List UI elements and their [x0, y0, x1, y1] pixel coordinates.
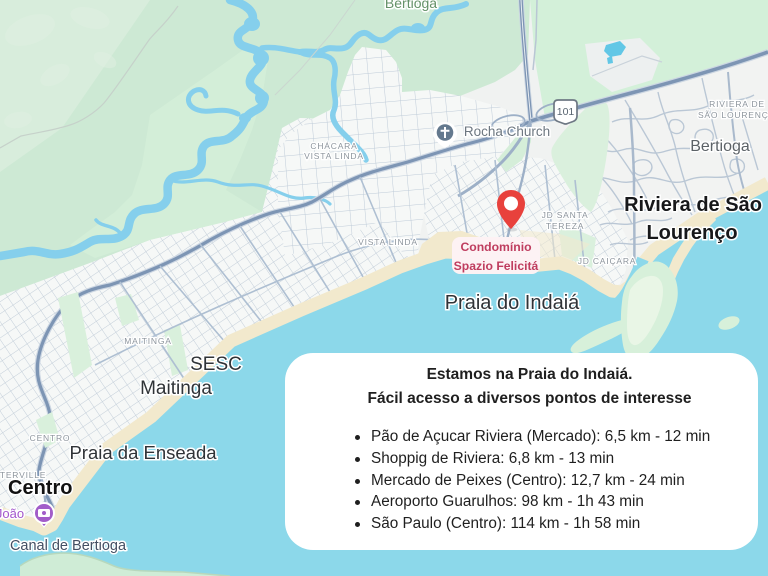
- svg-text:101: 101: [557, 106, 575, 118]
- svg-text:Riviera de São: Riviera de São: [624, 194, 762, 216]
- svg-text:João: João: [0, 506, 24, 521]
- svg-text:RIVIERA DE: RIVIERA DE: [709, 99, 765, 109]
- svg-text:CHÁCARA: CHÁCARA: [310, 141, 357, 151]
- svg-text:Condomínio: Condomínio: [460, 240, 531, 254]
- svg-text:Praia do Indaiá: Praia do Indaiá: [445, 292, 580, 314]
- svg-text:SESC: SESC: [190, 354, 242, 375]
- svg-text:MAITINGA: MAITINGA: [124, 336, 172, 346]
- svg-text:JD SANTA: JD SANTA: [542, 210, 589, 220]
- svg-text:VISTA LINDA: VISTA LINDA: [304, 151, 364, 161]
- svg-text:TEREZA: TEREZA: [546, 221, 584, 231]
- svg-text:SÃO LOURENÇO: SÃO LOURENÇO: [698, 110, 768, 120]
- svg-text:Maitinga: Maitinga: [140, 378, 212, 399]
- svg-text:Praia da Enseada: Praia da Enseada: [69, 442, 217, 463]
- svg-text:Spazio Felicitá: Spazio Felicitá: [454, 259, 539, 273]
- svg-text:Rocha Church: Rocha Church: [464, 124, 550, 139]
- svg-text:Bertioga: Bertioga: [690, 138, 750, 155]
- svg-text:Centro: Centro: [8, 477, 72, 499]
- svg-text:JD CAIÇARA: JD CAIÇARA: [578, 256, 637, 266]
- svg-text:Bertioga: Bertioga: [385, 0, 437, 11]
- svg-text:Canal de Bertioga: Canal de Bertioga: [10, 538, 127, 554]
- svg-text:CENTRO: CENTRO: [30, 433, 71, 443]
- svg-text:VISTA LINDA: VISTA LINDA: [358, 237, 418, 247]
- svg-text:Lourenço: Lourenço: [646, 222, 737, 244]
